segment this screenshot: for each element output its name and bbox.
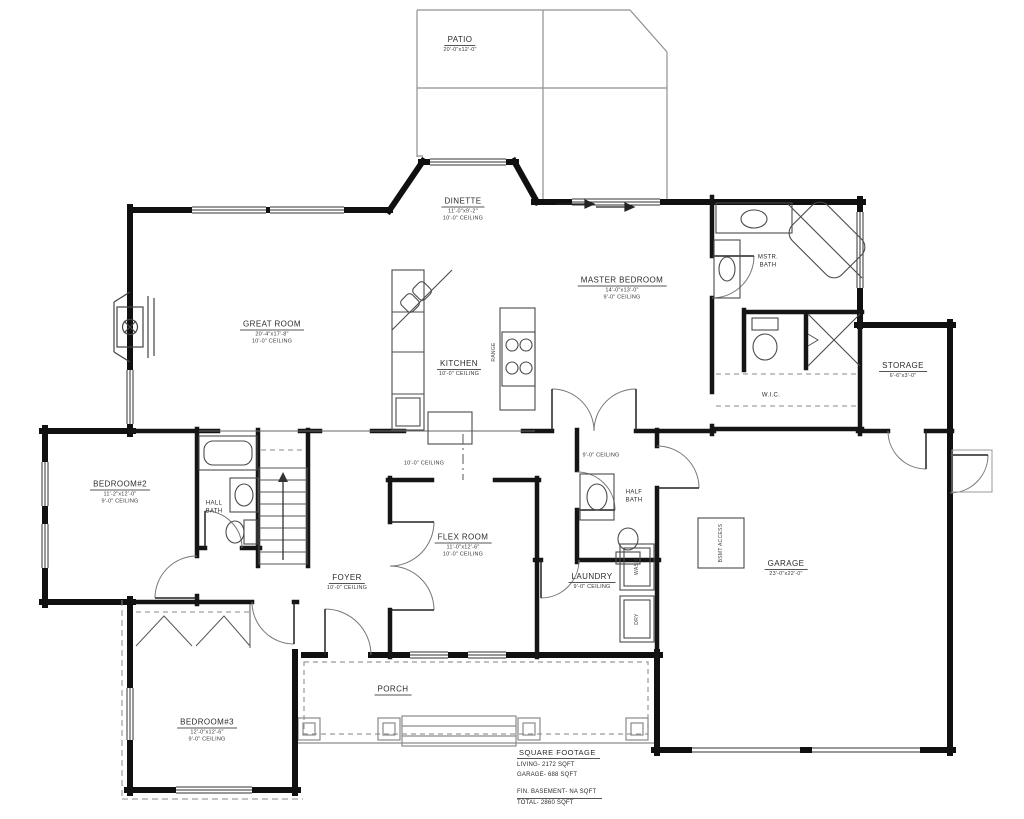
hall-bath-line2: BATH (206, 508, 223, 516)
room-label-hall-bath: HALL BATH (206, 501, 223, 516)
fireplace (114, 292, 154, 362)
great-room-name: GREAT ROOM (240, 320, 304, 331)
master-bath-line2: BATH (760, 262, 777, 270)
bedroom2-dims: 11'-2"x12'-0" (104, 492, 137, 498)
bedroom2-name: BEDROOM#2 (90, 480, 150, 491)
room-label-laundry: LAUNDRY 9'-0" CEILING (569, 572, 616, 590)
washer-label: WASH (634, 559, 640, 575)
patio-dims: 20'-0"x12'-0" (443, 47, 476, 53)
kitchen-name: KITCHEN (437, 359, 481, 370)
dinette-dims: 11'-0"x9'-2" (448, 209, 478, 215)
square-footage-living: LIVING- 2172 SQFT (517, 761, 602, 771)
wic-name: W.I.C. (762, 392, 780, 400)
dryer-label: DRY (634, 613, 640, 624)
room-label-garage: GARAGE 23'-0"x22'-0" (765, 559, 808, 577)
laundry-name: LAUNDRY (569, 572, 616, 583)
range-label: RANGE (491, 342, 497, 361)
room-label-foyer: FOYER 10'-0" CEILING (327, 573, 367, 591)
foyer-ceiling: 10'-0" CEILING (327, 585, 367, 591)
bedroom3-name: BEDROOM#3 (177, 718, 237, 729)
room-label-porch: PORCH (375, 685, 412, 696)
master-bedroom-dims: 14'-0"x13'-0" (605, 288, 638, 294)
half-bath-line1: HALF (626, 490, 643, 498)
dinette-name: DINETTE (441, 197, 484, 208)
exterior-walls (42, 161, 953, 793)
square-footage-basement: FIN. BASEMENT- NA SQFT (517, 788, 602, 799)
room-label-bedroom3: BEDROOM#3 12'-0"x12'-6" 9'-0" CEILING (177, 718, 237, 743)
master-bedroom-ceiling: 9'-0" CEILING (603, 295, 640, 301)
room-label-master-bedroom: MASTER BEDROOM 14'-0"x13'-0" 9'-0" CEILI… (578, 276, 667, 301)
foyer-name: FOYER (329, 573, 365, 584)
room-label-bedroom2: BEDROOM#2 11'-2"x12'-0" 9'-0" CEILING (90, 480, 150, 505)
square-footage-garage: GARAGE- 688 SQFT (517, 771, 602, 781)
room-label-patio: PATIO 20'-0"x12'-0" (443, 35, 476, 53)
dinette-ceiling: 10'-0" CEILING (443, 216, 483, 222)
room-label-flex-room: FLEX ROOM 11'-0"x12'-6" 10'-0" CEILING (435, 533, 492, 558)
porch-outline (297, 655, 657, 746)
storage-dims: 6'-6"x3'-0" (890, 373, 917, 379)
master-bath-fixtures (714, 198, 869, 366)
patio-name: PATIO (445, 35, 476, 46)
closet-doors (136, 604, 250, 648)
kitchen-ceiling: 10'-0" CEILING (439, 371, 479, 377)
half-bath-fixtures (580, 474, 640, 564)
floor-plan: PATIO 20'-0"x12'-0" DINETTE 11'-0"x9'-2"… (0, 0, 1024, 819)
floor-plan-drawing (0, 0, 1024, 819)
master-bath-line1: MSTR. (758, 255, 778, 263)
windows (40, 157, 865, 795)
basement-access-label: BSMT ACCESS (718, 524, 724, 563)
room-label-kitchen: KITCHEN 10'-0" CEILING (437, 359, 481, 377)
hall-ceiling-left-text: 10'-0" CEILING (404, 461, 444, 467)
room-label-great-room: GREAT ROOM 20'-4"x17'-8" 10'-0" CEILING (240, 320, 304, 345)
stairs (259, 468, 307, 564)
kitchen-fixtures (392, 270, 535, 444)
storage-name: STORAGE (879, 361, 927, 372)
hall-ceiling-label-left: 10'-0" CEILING (404, 460, 444, 467)
room-label-wic: W.I.C. (762, 392, 780, 400)
square-footage-total: TOTAL- 2860 SQFT (517, 799, 602, 809)
laundry-ceiling: 9'-0" CEILING (573, 584, 610, 590)
porch-name: PORCH (375, 685, 412, 696)
bedroom3-ceiling: 9'-0" CEILING (188, 737, 225, 743)
room-label-master-bath: MSTR. BATH (758, 255, 778, 270)
room-label-half-bath: HALF BATH (626, 490, 643, 505)
square-footage-title: SQUARE FOOTAGE (517, 748, 600, 759)
room-label-storage: STORAGE 6'-6"x3'-0" (879, 361, 927, 379)
hall-ceiling-right-text: 9'-0" CEILING (582, 453, 619, 459)
half-bath-line2: BATH (626, 497, 643, 505)
great-room-dims: 20'-4"x17'-8" (255, 332, 288, 338)
square-footage-block: SQUARE FOOTAGE LIVING- 2172 SQFT GARAGE-… (517, 742, 602, 808)
flex-room-ceiling: 10'-0" CEILING (443, 552, 483, 558)
master-bedroom-name: MASTER BEDROOM (578, 276, 667, 287)
flex-room-dims: 11'-0"x12'-6" (447, 545, 480, 551)
bedroom3-dims: 12'-0"x12'-6" (190, 730, 223, 736)
flex-room-name: FLEX ROOM (435, 533, 492, 544)
garage-name: GARAGE (765, 559, 808, 570)
room-label-dinette: DINETTE 11'-0"x9'-2" 10'-0" CEILING (441, 197, 484, 222)
garage-dims: 23'-0"x22'-0" (769, 571, 802, 577)
hall-bath-line1: HALL (206, 501, 222, 509)
great-room-ceiling: 10'-0" CEILING (252, 339, 292, 345)
hall-ceiling-label-right: 9'-0" CEILING (582, 452, 619, 459)
hall-bath-fixtures (199, 436, 258, 544)
bedroom2-ceiling: 9'-0" CEILING (101, 499, 138, 505)
door-swings (155, 256, 992, 655)
